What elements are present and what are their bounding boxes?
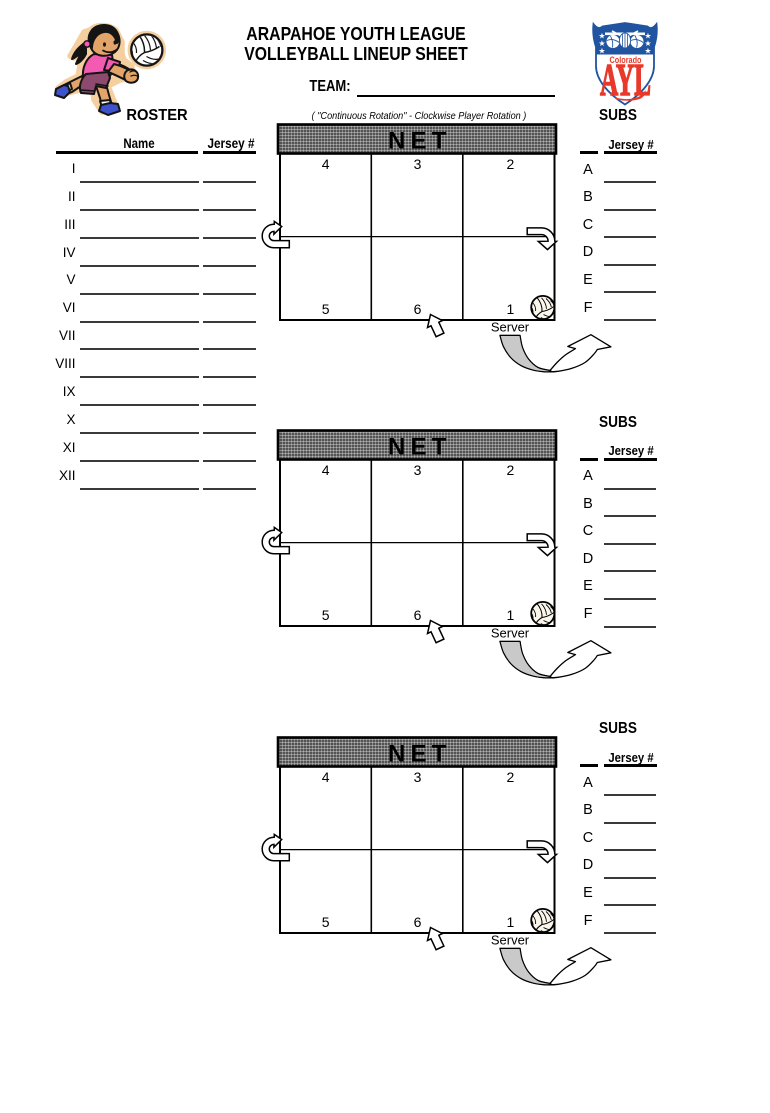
svg-text:NET: NET: [388, 740, 452, 767]
svg-text:Server: Server: [491, 933, 530, 948]
svg-text:4: 4: [322, 769, 330, 785]
svg-text:★: ★: [644, 47, 651, 56]
svg-text:1: 1: [507, 607, 515, 623]
svg-text:Server: Server: [491, 626, 530, 641]
svg-text:Server: Server: [491, 320, 530, 335]
svg-text:2: 2: [507, 156, 515, 172]
svg-text:5: 5: [322, 301, 330, 317]
svg-text:4: 4: [322, 156, 330, 172]
svg-text:1: 1: [507, 301, 515, 317]
svg-text:6: 6: [414, 914, 422, 930]
svg-text:3: 3: [414, 769, 422, 785]
svg-text:5: 5: [322, 607, 330, 623]
svg-text:6: 6: [414, 301, 422, 317]
svg-text:2: 2: [507, 462, 515, 478]
svg-text:3: 3: [414, 156, 422, 172]
svg-text:3: 3: [414, 462, 422, 478]
svg-text:6: 6: [414, 607, 422, 623]
svg-text:★: ★: [598, 47, 605, 56]
svg-text:NET: NET: [388, 127, 452, 154]
svg-text:AYL: AYL: [600, 55, 651, 106]
svg-text:2: 2: [507, 769, 515, 785]
svg-text:1: 1: [507, 914, 515, 930]
svg-text:NET: NET: [388, 433, 452, 460]
svg-text:5: 5: [322, 914, 330, 930]
svg-text:4: 4: [322, 462, 330, 478]
